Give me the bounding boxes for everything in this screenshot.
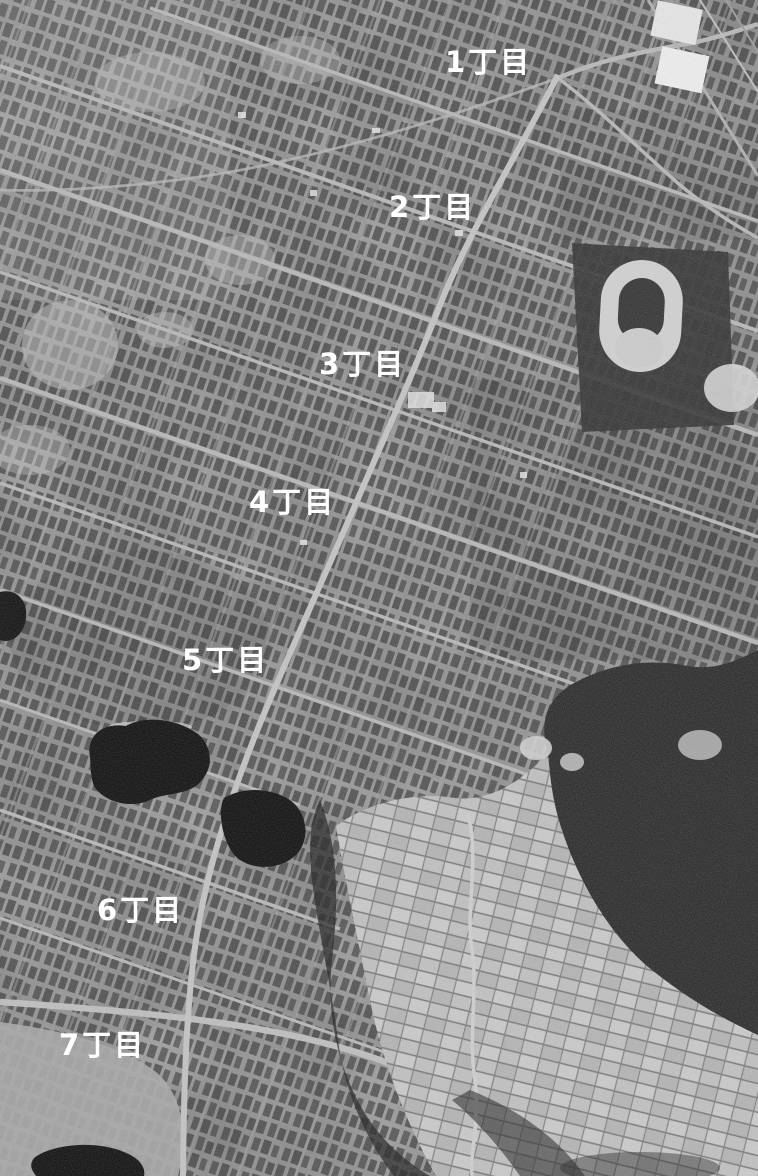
aerial-photo-stage: 1丁目 2丁目 3丁目 4丁目 5丁目 6丁目 7丁目 — [0, 0, 758, 1176]
aerial-photo — [0, 0, 758, 1176]
film-grain-overlay — [0, 0, 758, 1176]
